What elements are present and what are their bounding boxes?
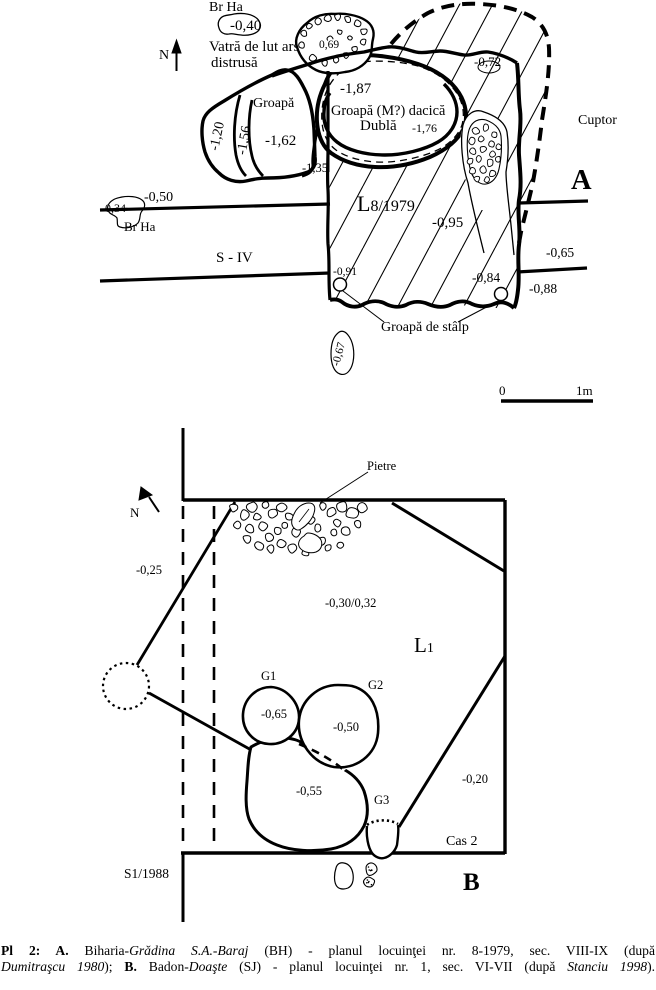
svg-text:-0,20: -0,20: [462, 772, 488, 786]
svg-text:1m: 1m: [576, 383, 593, 398]
svg-text:G3: G3: [374, 793, 389, 807]
svg-text:0,69: 0,69: [319, 39, 339, 51]
svg-text:-0,84: -0,84: [472, 270, 500, 285]
svg-text:Pietre: Pietre: [367, 459, 397, 473]
svg-text:Groapă de stâlp: Groapă de stâlp: [381, 320, 469, 335]
svg-text:-0,91: -0,91: [333, 266, 357, 278]
svg-text:A: A: [571, 165, 592, 196]
svg-text:-1,62: -1,62: [265, 133, 296, 149]
svg-text:-0,65: -0,65: [546, 245, 574, 260]
svg-text:-0,50: -0,50: [144, 190, 173, 205]
svg-text:-0,50: -0,50: [333, 720, 359, 734]
svg-text:N: N: [159, 48, 169, 63]
svg-text:-0,72: -0,72: [474, 54, 501, 69]
svg-text:G2: G2: [368, 678, 383, 692]
svg-text:-1,87: -1,87: [340, 81, 372, 97]
svg-text:-0,95: -0,95: [432, 215, 463, 231]
svg-text:G1: G1: [261, 669, 276, 683]
svg-text:-0,88: -0,88: [529, 281, 557, 296]
svg-text:-0,65: -0,65: [261, 707, 287, 721]
svg-text:Cuptor: Cuptor: [578, 113, 617, 128]
svg-text:Vatră de lut ars: Vatră de lut ars: [209, 39, 300, 55]
svg-text:N: N: [130, 505, 140, 520]
svg-text:-0,25: -0,25: [136, 563, 162, 577]
svg-text:S1/1988: S1/1988: [124, 866, 169, 881]
svg-text:B: B: [463, 869, 480, 896]
svg-text:Cas 2: Cas 2: [446, 834, 478, 849]
svg-text:distrusă: distrusă: [211, 55, 258, 71]
svg-text:-0,40: -0,40: [230, 18, 261, 34]
svg-text:0: 0: [499, 383, 506, 398]
svg-text:-0,55: -0,55: [296, 784, 322, 798]
svg-text:Br Ha: Br Ha: [124, 219, 156, 234]
svg-text:-0,34: -0,34: [101, 201, 126, 215]
svg-text:Groapă: Groapă: [253, 96, 295, 111]
svg-text:-1,76: -1,76: [412, 121, 437, 135]
svg-text:-1,35: -1,35: [302, 161, 328, 175]
svg-text:Dublă: Dublă: [360, 118, 397, 134]
svg-text:Groapă (M?) dacică: Groapă (M?) dacică: [331, 103, 446, 119]
svg-text:-0,30/0,32: -0,30/0,32: [325, 596, 376, 610]
svg-text:S - IV: S - IV: [216, 250, 253, 266]
svg-text:Br Ha: Br Ha: [209, 0, 244, 15]
